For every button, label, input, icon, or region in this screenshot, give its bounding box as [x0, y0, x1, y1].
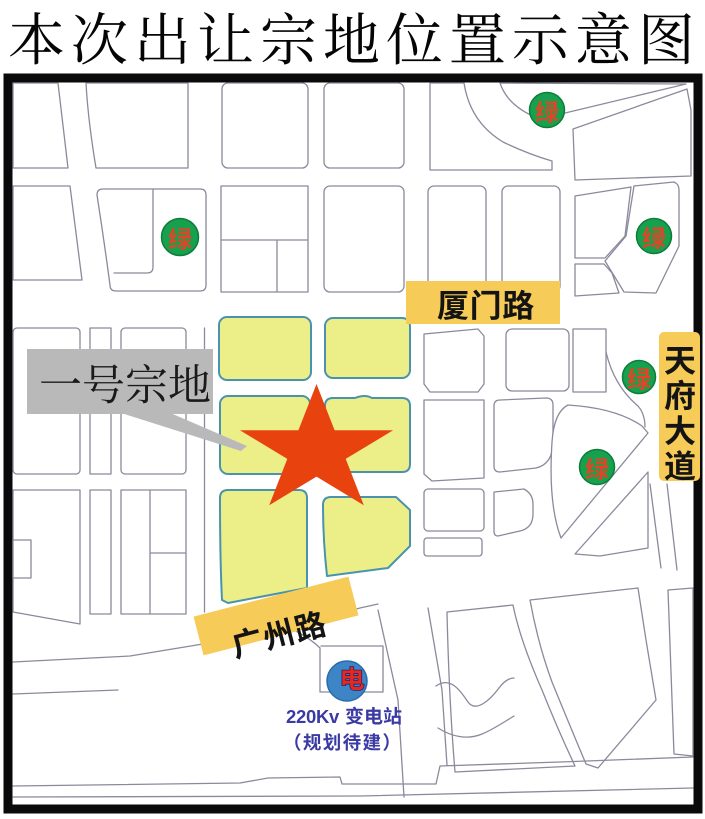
- svg-text:220Kv: 220Kv: [286, 706, 340, 727]
